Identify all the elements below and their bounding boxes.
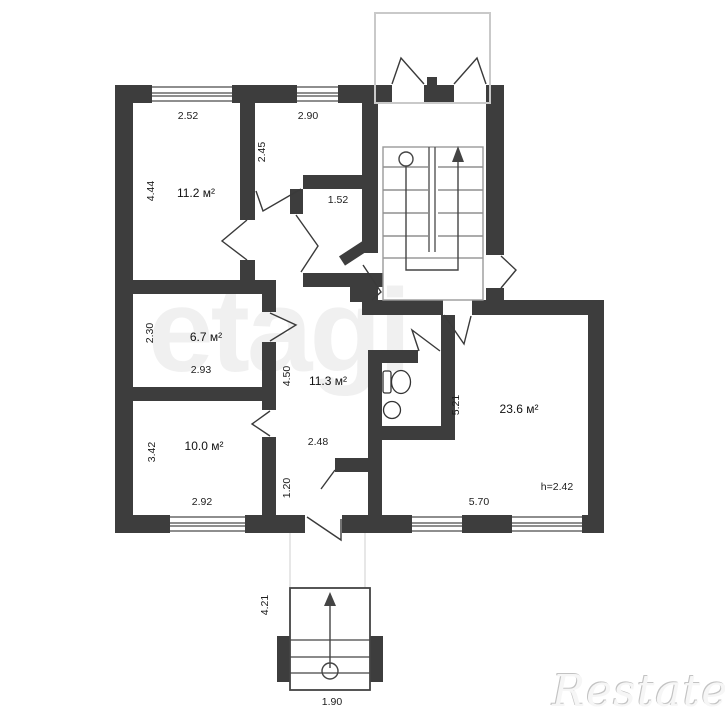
- stairs-direction: [399, 146, 464, 270]
- dimension-label: 2.52: [178, 110, 198, 122]
- dimension-label: 5.70: [469, 496, 489, 508]
- wall: [486, 85, 504, 255]
- door-swing: [321, 470, 335, 489]
- room-area-label: 11.3 м²: [309, 374, 347, 388]
- window: [412, 517, 462, 531]
- dimension-label: 2.90: [298, 110, 318, 122]
- bathroom-fixtures: [383, 371, 411, 419]
- wall: [115, 387, 276, 401]
- floor-plan-drawing: [0, 0, 725, 725]
- wall: [441, 315, 455, 438]
- room-area-label: 10.0 м²: [185, 439, 224, 453]
- room-area-label: 23.6 м²: [500, 402, 539, 416]
- wall: [262, 437, 276, 533]
- floor-plan: etagi: [0, 0, 725, 725]
- wall: [362, 300, 443, 315]
- wall: [427, 77, 437, 85]
- wall: [240, 260, 255, 283]
- door-swing: [307, 517, 341, 540]
- stairs-start-circle: [399, 152, 413, 166]
- wall: [262, 288, 276, 312]
- stairs-outline: [383, 147, 483, 300]
- dimension-label: 2.48: [308, 436, 328, 448]
- wall: [335, 458, 368, 472]
- door-swing: [454, 58, 486, 84]
- dimension-label: 4.50: [281, 366, 293, 386]
- dimension-label: 2.30: [144, 323, 156, 343]
- dimension-label: 1.52: [328, 194, 348, 206]
- toilet-icon: [392, 371, 411, 394]
- dimension-label: 2.92: [192, 496, 212, 508]
- window: [170, 517, 245, 531]
- wall: [115, 515, 170, 533]
- door-swing: [270, 313, 296, 341]
- wall: [424, 85, 454, 103]
- stairs-up-arrow: [452, 146, 464, 162]
- wall: [350, 287, 378, 302]
- sink-icon: [384, 402, 401, 419]
- dimension-label: 1.90: [322, 696, 342, 708]
- wall: [115, 85, 133, 533]
- wall: [303, 273, 383, 287]
- window: [152, 87, 232, 101]
- window: [297, 87, 338, 101]
- wall: [462, 515, 512, 533]
- wall-angled: [342, 246, 365, 261]
- wall: [115, 280, 276, 294]
- wall: [290, 189, 303, 214]
- wall: [378, 85, 392, 103]
- stairwell: [383, 147, 483, 300]
- entrance-porch: [290, 533, 370, 690]
- wall: [232, 85, 297, 103]
- dimension-label: 5.21: [450, 395, 462, 415]
- window: [512, 517, 582, 531]
- dimension-label: 4.44: [145, 181, 157, 201]
- wall: [362, 85, 378, 253]
- walls: [115, 77, 604, 682]
- dimension-label: 4.21: [259, 595, 271, 615]
- dimension-label: 2.93: [191, 364, 211, 376]
- door-swing: [296, 215, 318, 272]
- door-swing: [501, 256, 516, 288]
- wall: [240, 103, 255, 220]
- wall: [582, 515, 604, 533]
- wall: [303, 175, 378, 189]
- wall: [368, 350, 418, 363]
- ceiling-height-label: h=2.42: [541, 481, 573, 493]
- dimension-label: 3.42: [146, 442, 158, 462]
- wall: [472, 300, 604, 315]
- door-swing: [252, 411, 270, 436]
- room-area-label: 6.7 м²: [190, 330, 222, 344]
- wall: [588, 300, 604, 533]
- wall: [368, 350, 382, 533]
- toilet-icon: [383, 371, 391, 393]
- wall: [262, 342, 276, 410]
- room-area-label: 11.2 м²: [177, 186, 215, 200]
- door-swing: [392, 58, 424, 84]
- dimension-label: 2.45: [256, 142, 268, 162]
- dimension-label: 1.20: [281, 478, 293, 498]
- entrance-arrow: [324, 592, 336, 606]
- door-swing: [222, 220, 247, 260]
- door-swing: [412, 330, 440, 351]
- wall: [115, 85, 152, 103]
- watermark-restate: Restate: [552, 666, 725, 717]
- porch-pillar: [277, 636, 290, 682]
- porch-pillar: [370, 636, 383, 682]
